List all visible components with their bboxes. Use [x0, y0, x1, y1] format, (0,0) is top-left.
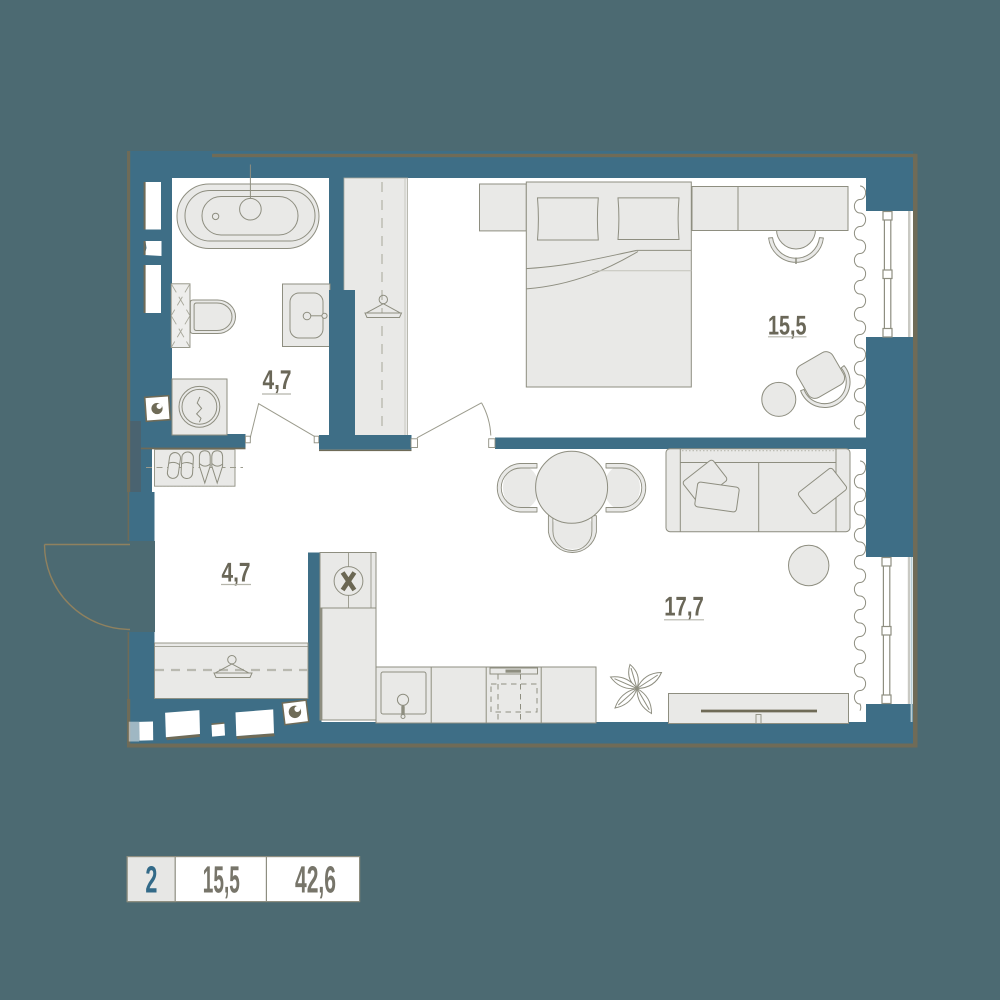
svg-text:42,6: 42,6	[295, 860, 336, 902]
svg-text:17,7: 17,7	[664, 591, 704, 621]
svg-text:2: 2	[145, 860, 157, 902]
svg-text:4,7: 4,7	[263, 365, 292, 395]
svg-text:4,7: 4,7	[222, 558, 251, 588]
svg-text:15,5: 15,5	[203, 860, 240, 902]
svg-text:15,5: 15,5	[768, 310, 807, 340]
